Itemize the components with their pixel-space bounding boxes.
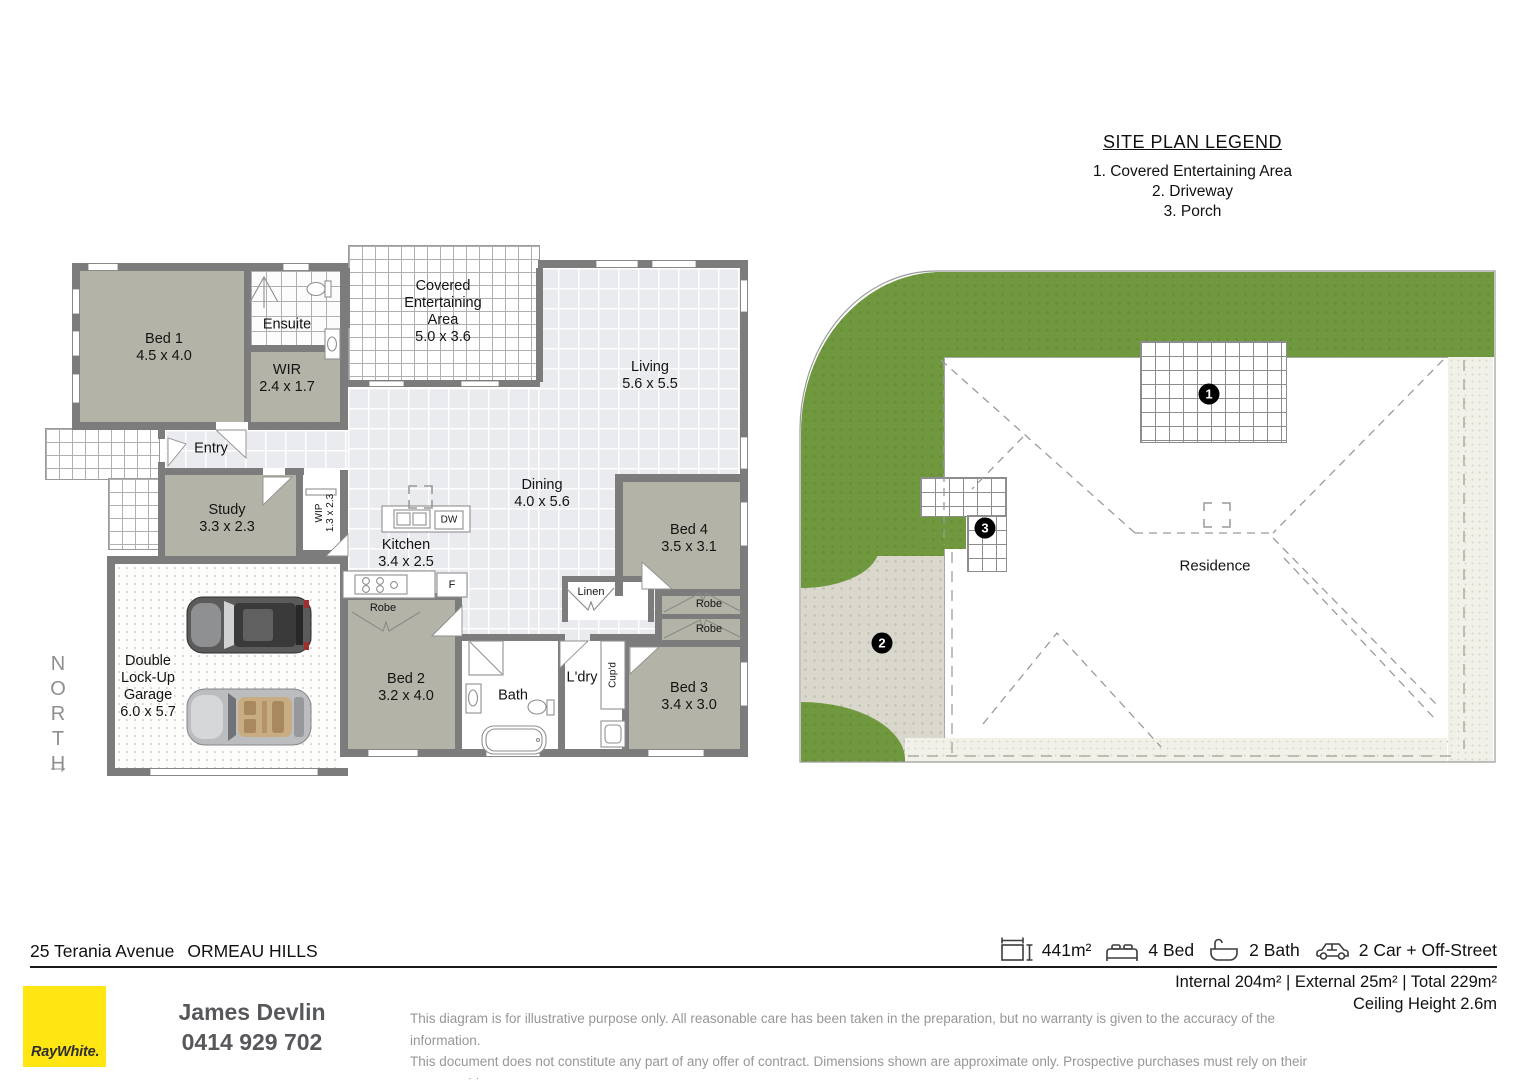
agent-name: James Devlin [172, 997, 332, 1027]
disclaimer-line1: This diagram is for illustrative purpose… [410, 1008, 1310, 1051]
divider-line [30, 966, 1497, 968]
stat-cars-value: 2 Car + Off-Street [1359, 940, 1497, 961]
car-convertible [187, 689, 311, 745]
stat-cars: 2 Car + Off-Street [1313, 937, 1497, 963]
room-label-ldry: L'dry [567, 670, 598, 687]
stat-baths: 2 Bath [1207, 936, 1300, 964]
legend-title: SITE PLAN LEGEND [1040, 132, 1345, 153]
room-label-bed4: Bed 4 3.5 x 3.1 [661, 522, 717, 556]
areas-summary: Internal 204m² | External 25m² | Total 2… [1175, 973, 1497, 992]
address-suburb: ORMEAU HILLS [187, 941, 317, 962]
room-label-wip: WIP 1.3 x 2.3 [314, 494, 336, 532]
floorplan-page: Bed 1 4.5 x 4.0 Ensuite WIR 2.4 x 1.7 En… [0, 0, 1528, 1080]
bath-icon [1207, 936, 1241, 964]
room-label-bed1: Bed 1 4.5 x 4.0 [136, 331, 192, 365]
site-plan-legend: SITE PLAN LEGEND 1. Covered Entertaining… [1040, 132, 1345, 222]
agent-phone: 0414 929 702 [172, 1027, 332, 1057]
site-marker-2: 2 [872, 633, 893, 654]
room-label-bath: Bath [498, 688, 528, 705]
site-linework [800, 271, 1495, 762]
room-label-robe-bed2: Robe [370, 602, 396, 614]
ceiling-height: Ceiling Height 2.6m [1353, 995, 1497, 1014]
car-icon [1313, 937, 1351, 963]
room-label-garage: Double Lock-Up Garage 6.0 x 5.7 [120, 653, 176, 721]
bed-icon [1104, 937, 1140, 963]
land-area-icon [998, 936, 1034, 964]
label-dishwasher: DW [441, 515, 458, 526]
room-label-wir: WIR 2.4 x 1.7 [259, 362, 315, 396]
property-address: 25 Terania Avenue ORMEAU HILLS [30, 941, 318, 962]
room-label-robe-bed4: Robe [696, 598, 722, 610]
room-label-covered-entertaining: Covered Entertaining Area 5.0 x 3.6 [404, 278, 481, 346]
stat-beds: 4 Bed [1104, 937, 1194, 963]
room-label-ensuite: Ensuite [263, 317, 311, 334]
stat-land-area: 441m² [998, 936, 1092, 964]
room-label-entry: Entry [194, 441, 228, 458]
room-label-linen: Linen [578, 586, 605, 598]
label-fridge: F [449, 579, 456, 591]
raywhite-logo-text: RayWhite. [31, 1044, 99, 1060]
property-stats: 441m² 4 Bed 2 Bath [998, 936, 1497, 964]
north-arrow-icon: → [44, 752, 72, 780]
room-label-study: Study 3.3 x 2.3 [199, 502, 255, 536]
room-label-living: Living 5.6 x 5.5 [622, 359, 678, 393]
room-label-bed3: Bed 3 3.4 x 3.0 [661, 680, 717, 714]
agent-block: James Devlin 0414 929 702 [172, 997, 332, 1057]
room-label-kitchen: Kitchen 3.4 x 2.5 [378, 537, 434, 571]
legend-items: 1. Covered Entertaining Area 2. Driveway… [1040, 162, 1345, 222]
site-marker-3: 3 [975, 518, 996, 539]
address-street: 25 Terania Avenue [30, 941, 174, 962]
disclaimer: This diagram is for illustrative purpose… [410, 1008, 1310, 1080]
room-label-cupd: Cup'd [608, 662, 619, 688]
room-label-bed2: Bed 2 3.2 x 4.0 [378, 671, 434, 705]
stat-beds-value: 4 Bed [1148, 940, 1194, 961]
stat-land-area-value: 441m² [1042, 940, 1092, 961]
car-suv [187, 597, 311, 653]
raywhite-logo: RayWhite. [23, 986, 106, 1067]
room-label-dining: Dining 4.0 x 5.6 [514, 477, 570, 511]
site-marker-1: 1 [1199, 384, 1220, 405]
disclaimer-line2: This document does not constitute any pa… [410, 1051, 1310, 1080]
site-label-residence: Residence [1180, 558, 1251, 575]
room-label-robe-bed3: Robe [696, 623, 722, 635]
stat-baths-value: 2 Bath [1249, 940, 1300, 961]
